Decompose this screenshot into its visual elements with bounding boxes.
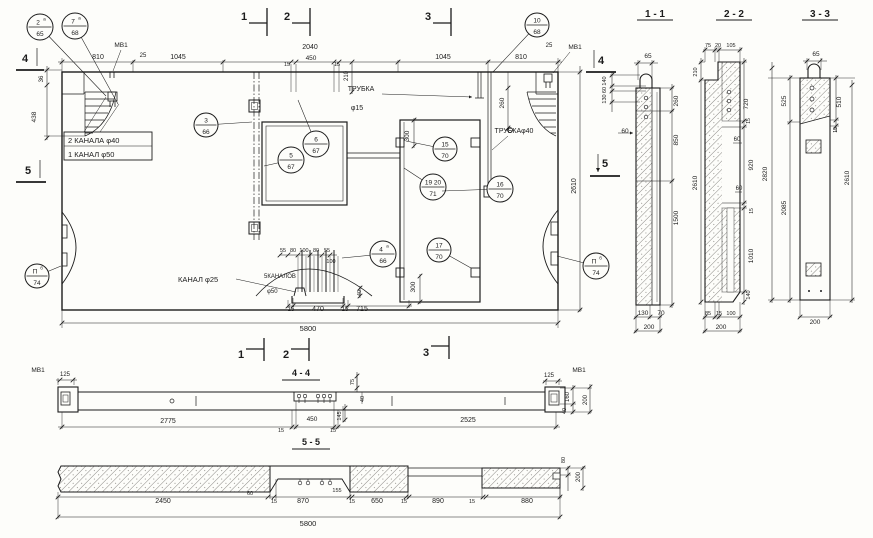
label-mt2: 2 [284,11,290,23]
callout-sheet-ref: 68 [533,29,541,36]
callout-Пб: Пб74 [25,264,61,288]
callout-number: П [592,259,597,266]
label-p15c: 15 [288,307,295,313]
label-c65: 65 [812,51,820,58]
tube15-leader [382,94,472,97]
label-b100: 100 [726,311,735,317]
label-mr4: 4 [598,55,605,67]
label-e880: 880 [521,498,533,505]
label-d2775: 2775 [160,418,176,425]
callout-sheet-ref: 66 [202,129,210,136]
label-mt1: 1 [241,11,247,23]
label-p15b: 15 [334,62,340,68]
label-d40b: 40 [562,408,568,414]
callout-sheet-ref: 67 [287,164,295,171]
label-p15a: 15 [284,62,290,68]
left-edge-socket-arc [62,212,76,284]
label-c525: 525 [781,95,788,106]
label-p438: 438 [31,111,38,122]
title-underlines [282,20,838,449]
callout-number: 5 [289,153,293,160]
callout-number: 15 [441,142,449,149]
label-mb1: 1 [238,349,244,361]
corner-channels-right [527,72,558,136]
label-e200: 200 [576,471,582,482]
label-mb3: 3 [423,347,429,359]
label-p1045l: 1045 [170,54,186,61]
label-p470: 470 [312,306,324,313]
callout-10: 1068 [493,13,549,72]
label-p40: 40 [357,290,363,296]
callout-4a: 4a66 [342,241,396,267]
label-p260: 260 [499,97,506,108]
label-p810r: 810 [515,54,527,61]
label-p55b: 55 [324,248,330,254]
label-b15b: 15 [749,208,755,214]
label-t44: 4 - 4 [292,368,310,378]
callout-sheet-ref: 70 [496,193,504,200]
callout-3: 366 [194,113,252,137]
label-p80b: 80 [313,248,319,254]
callout-6: 667 [298,100,329,157]
channel-dashed-run [254,72,259,240]
label-a65: 65 [644,53,652,60]
label-e155: 155 [332,488,341,494]
label-d145: 145 [337,411,343,420]
label-mv-44r: МВ1 [572,367,586,374]
label-b85: 85 [705,311,711,317]
callout-number: 4 [379,247,383,254]
label-p450: 450 [306,55,317,62]
callout-number: 17 [435,243,443,250]
callout-sheet-ref: 65 [36,31,44,38]
callout-sheet-ref: 66 [379,258,387,265]
label-e15a: 15 [271,499,277,505]
callout-number: 10 [533,18,541,25]
label-b105: 105 [726,43,735,49]
section-3-3 [800,64,830,300]
label-mv-tr: МВ1 [568,44,582,51]
label-b1010: 1010 [748,248,755,263]
anchor-mv1-topleft [108,72,117,107]
callout-sheet-ref: 71 [429,191,437,198]
callout-number: 19 20 [425,180,442,187]
socket-hole-upper [806,140,821,153]
label-p810l: 810 [92,54,104,61]
label-a60b: 60 [621,128,629,135]
label-mv-44l: МВ1 [31,367,45,374]
callout-sheet-ref: 70 [435,254,443,261]
right-socket-1 [551,222,558,235]
right-end-notch [553,473,560,479]
label-p2040: 2040 [302,44,318,51]
label-b200: 200 [716,324,727,331]
label-d15l: 15 [278,428,284,434]
left-socket-2 [62,253,67,266]
socket-hole-lower [806,263,821,276]
label-n-k40: 2 КАНАЛА φ40 [68,136,119,145]
label-d125r: 125 [544,373,555,379]
label-e650: 650 [371,498,383,505]
callout-15: 1570 [406,137,457,161]
label-b15c: 15 [716,311,722,317]
label-t22: 2 - 2 [724,9,744,20]
label-n-tr15b: φ15 [351,105,363,112]
label-p1045r: 1045 [435,54,451,61]
label-p300t: 300 [404,130,411,141]
label-mr5: 5 [602,158,608,170]
callout-number: 2 [36,20,40,27]
label-n-k25: КАНАЛ φ25 [178,275,218,284]
label-a140: 140 [602,76,608,85]
callout-number: 7 [71,19,75,26]
label-t55: 5 - 5 [302,437,320,447]
section-5-5 [58,466,560,492]
label-e80: 80 [561,457,567,463]
label-c2820: 2820 [762,166,769,181]
lifting-loop [808,64,820,78]
label-c2085: 2085 [781,200,788,215]
label-e15b: 15 [349,499,355,505]
label-b2610: 2610 [692,175,699,190]
label-b210: 210 [693,67,699,76]
label-a70: 70 [657,310,665,317]
label-p300b: 300 [410,281,417,292]
drawing-sheet: 2a657a681068366667567157019 207116701770… [0,0,873,538]
label-n-k50: 1 КАНАЛ φ50 [68,150,114,159]
callout-19-20: 19 2071 [404,168,446,200]
callout-sheet-ref: 74 [592,270,600,277]
label-n-tr40: ТРУБКАφ40 [495,128,534,135]
label-b60a: 60 [734,137,741,143]
label-n-k5: 5КАНАЛОВ [264,274,296,280]
left-socket-1 [62,225,67,238]
label-mb2: 2 [283,349,289,361]
label-c510: 510 [836,96,843,107]
callout-5: 567 [264,147,304,173]
label-p715: 715 [356,306,368,313]
label-a60a: 60 [602,87,608,93]
anchor-mv1-topright [544,74,552,88]
callout-Пб: Пб74 [557,253,609,279]
label-e890: 890 [432,498,444,505]
label-e15d: 15 [469,499,475,505]
panel-engineering-drawing: 2a657a681068366667567157019 207116701770… [0,0,873,538]
label-a130: 130 [602,94,608,103]
label-b75: 75 [705,43,711,49]
label-d40a: 40 [360,396,366,402]
label-b60b: 60 [736,186,743,192]
label-d125l: 125 [60,372,71,378]
label-p25r: 25 [546,43,553,49]
label-mt3: 3 [425,11,431,23]
label-a200: 200 [644,324,655,331]
label-d450: 450 [307,416,318,423]
label-b15a: 15 [746,118,752,124]
label-p100c: 100 [326,259,335,265]
label-ml4: 4 [22,53,29,65]
leader-lines [84,50,570,292]
label-c200: 200 [810,319,821,326]
callout-17: 1770 [427,238,471,268]
callout-number: П [33,269,38,276]
label-d160: 160 [565,391,571,402]
label-ml5: 5 [25,165,31,177]
label-e2450: 2450 [155,498,171,505]
label-e15c: 15 [401,499,407,505]
label-d75: 75 [350,379,356,385]
right-edge-socket-arc [543,210,558,284]
section-4-4 [58,387,565,412]
section-2-2 [705,62,742,302]
label-t33: 3 - 3 [810,9,830,20]
label-p25l: 25 [140,53,147,59]
section-1-1 [618,74,660,305]
label-p100a: 100 [299,248,308,254]
label-t11: 1 - 1 [645,9,665,20]
channel-junction-boxes [249,100,260,234]
callout-number: 16 [496,182,504,189]
label-p55a: 55 [280,248,286,254]
label-n-tr15a: ТРУБКА [348,86,375,93]
label-p2610: 2610 [571,178,578,194]
label-a850: 850 [673,134,680,145]
callout-sheet-ref: 68 [71,30,79,37]
callout-superscript: б [40,266,43,271]
label-p80a: 80 [290,248,296,254]
label-d15r: 15 [330,428,336,434]
right-socket-2 [551,252,558,265]
label-b140: 140 [746,290,752,299]
label-n-f50: φ50 [267,289,278,295]
label-a1500: 1500 [673,210,680,225]
label-b20: 20 [715,43,721,49]
recess-anchors-55 [298,479,332,485]
label-p15d: 15 [342,307,349,313]
recess-anchors [297,394,331,403]
callout-16: 1670 [442,176,513,202]
label-e5800: 5800 [300,519,317,528]
label-d200: 200 [583,394,589,405]
label-d2525: 2525 [460,417,476,424]
label-c2610: 2610 [844,170,851,185]
callout-sheet-ref: 74 [33,280,41,287]
callout-number: 6 [314,137,318,144]
label-a260: 260 [673,95,680,106]
label-p36: 36 [39,75,45,82]
callout-superscript: б [599,256,602,261]
bottom-recess [292,296,344,303]
tube-40-run [488,72,491,186]
label-a130b: 130 [638,310,649,317]
conduit-connector [347,153,400,158]
label-mv-tl: МВ1 [114,42,128,49]
label-b720: 720 [743,98,750,109]
callout-number: 3 [204,118,208,125]
callout-sheet-ref: 70 [441,153,449,160]
label-b920: 920 [748,159,755,170]
label-c15: 15 [833,127,839,133]
callout-sheet-ref: 67 [312,148,320,155]
label-p5800: 5800 [300,324,317,333]
tube-15-run [475,72,484,98]
label-e870: 870 [297,498,309,505]
corner-channels-left [62,72,116,136]
label-p210: 210 [344,70,350,81]
label-e60: 60 [247,491,253,497]
